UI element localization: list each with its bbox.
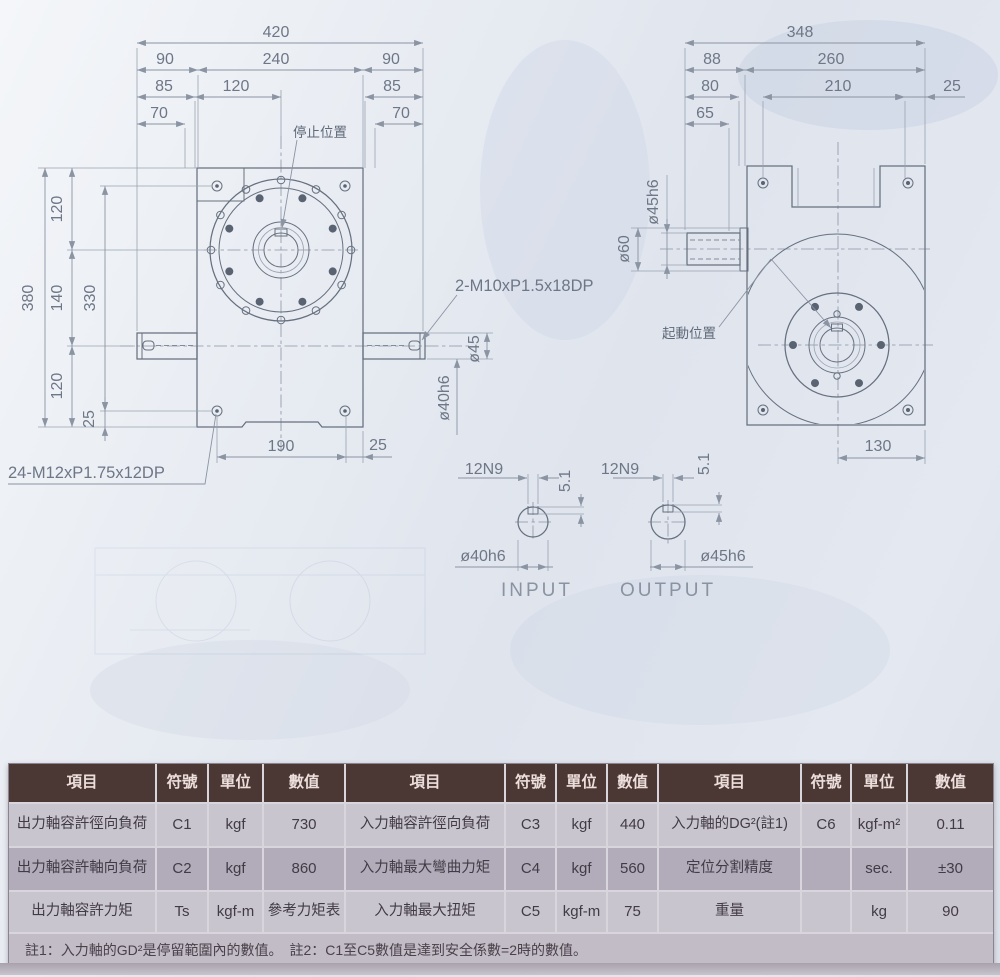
- tap-note-2-m10: 2-M10xP1.5x18DP: [455, 277, 594, 295]
- dim-label-dia45: ø45: [466, 335, 483, 363]
- table-cell: 860: [264, 848, 344, 890]
- table-cell: 入力軸最大扭矩: [346, 892, 504, 932]
- output-dia-label: ø45h6: [700, 548, 745, 565]
- front-face-line: [197, 168, 244, 201]
- dim-label-70-left: 70: [150, 105, 168, 122]
- dim-label-25-right: 25: [943, 78, 961, 95]
- side-input-shaft: [687, 228, 748, 271]
- input-caption: INPUT: [501, 580, 573, 601]
- dim-label-90-right: 90: [382, 51, 400, 68]
- table-cell: sec.: [852, 848, 906, 890]
- dim-label-dia45h6-side: ø45h6: [645, 179, 662, 224]
- side-body: [747, 166, 925, 425]
- dim-label-70-right: 70: [392, 105, 410, 122]
- ghost-drawing: [95, 548, 425, 654]
- table-cell: 730: [264, 804, 344, 846]
- dim-label-240: 240: [263, 51, 290, 68]
- table-cell: kg: [852, 892, 906, 932]
- dim-label-190: 190: [268, 438, 295, 455]
- table-cell: kgf-m: [209, 892, 262, 932]
- table-cell: C1: [157, 804, 207, 846]
- col-header-unit-3: 單位: [852, 764, 906, 802]
- dim-label-330: 330: [82, 285, 99, 312]
- table-cell: 入力軸容許徑向負荷: [346, 804, 504, 846]
- spec-table: 項目 符號 單位 數值 項目 符號 單位 數值 項目 符號 單位 數值 出力軸容…: [8, 763, 994, 966]
- scan-edge-strip: [0, 963, 1000, 975]
- table-cell: [802, 892, 850, 932]
- dim-label-348: 348: [787, 24, 814, 41]
- table-cell: C2: [157, 848, 207, 890]
- dim-label-120-top: 120: [223, 78, 250, 95]
- table-cell: 75: [608, 892, 657, 932]
- table-cell: kgf: [209, 804, 262, 846]
- dim-label-90-left: 90: [156, 51, 174, 68]
- dim-label-260: 260: [818, 51, 845, 68]
- side-small-hole-bottom: [834, 373, 840, 379]
- table-cell: 參考力矩表: [264, 892, 344, 932]
- col-header-symbol-1: 符號: [157, 764, 207, 802]
- col-header-value-3: 數值: [908, 764, 993, 802]
- table-cell: 入力軸的DG²(註1): [659, 804, 800, 846]
- stop-position-label: 停止位置: [293, 124, 347, 140]
- dim-label-25-bottom: 25: [369, 437, 387, 454]
- scan-artifacts: [90, 20, 998, 740]
- dim-label-85-right: 85: [383, 78, 401, 95]
- dim-label-dia40h6: ø40h6: [436, 375, 453, 420]
- table-cell: Ts: [157, 892, 207, 932]
- technical-drawing: 420 90 240 90 85 120 85 70 70 停止位置 380 1…: [0, 0, 1000, 763]
- col-header-unit-1: 單位: [209, 764, 262, 802]
- table-cell: 出力軸容許力矩: [9, 892, 155, 932]
- col-header-item-1: 項目: [9, 764, 155, 802]
- dim-label-85-left: 85: [155, 78, 173, 95]
- front-dimension-lines: [8, 43, 487, 484]
- side-corner-holes: [758, 178, 913, 415]
- input-shaft-section: 12N9 5.1 ø40h6 INPUT: [455, 461, 584, 601]
- table-cell: ±30: [908, 848, 993, 890]
- output-key-depth-label: 5.1: [696, 453, 713, 475]
- table-cell: kgf: [557, 848, 606, 890]
- table-cell: C5: [506, 892, 555, 932]
- col-header-item-2: 項目: [346, 764, 504, 802]
- dim-label-88: 88: [703, 51, 721, 68]
- table-cell: 定位分割精度: [659, 848, 800, 890]
- dim-label-210: 210: [825, 78, 852, 95]
- col-header-symbol-3: 符號: [802, 764, 850, 802]
- table-cell: kgf-m²: [852, 804, 906, 846]
- dim-label-dia60: ø60: [616, 235, 633, 263]
- col-header-unit-2: 單位: [557, 764, 606, 802]
- dim-label-120-lower: 120: [49, 373, 66, 400]
- input-key-label: 12N9: [465, 461, 503, 478]
- front-extension-lines: [38, 48, 493, 463]
- table-cell: 0.11: [908, 804, 993, 846]
- output-caption: OUTPUT: [620, 580, 716, 601]
- dim-label-420: 420: [263, 24, 290, 41]
- table-cell: 出力軸容許軸向負荷: [9, 848, 155, 890]
- table-cell: 90: [908, 892, 993, 932]
- table-cell: [802, 848, 850, 890]
- table-cell: kgf-m: [557, 892, 606, 932]
- table-cell: 入力軸最大彎曲力矩: [346, 848, 504, 890]
- table-cell: 出力軸容許徑向負荷: [9, 804, 155, 846]
- col-header-value-1: 數值: [264, 764, 344, 802]
- table-cell: kgf: [209, 848, 262, 890]
- start-position-label: 起動位置: [662, 326, 716, 341]
- output-key-label: 12N9: [601, 461, 639, 478]
- table-cell: C4: [506, 848, 555, 890]
- input-key-depth-label: 5.1: [557, 470, 574, 492]
- datasheet-page: 420 90 240 90 85 120 85 70 70 停止位置 380 1…: [0, 0, 1000, 977]
- table-cell: 重量: [659, 892, 800, 932]
- table-cell: kgf: [557, 804, 606, 846]
- table-cell: C3: [506, 804, 555, 846]
- side-small-hole-top: [834, 311, 840, 317]
- dim-label-130: 130: [865, 438, 892, 455]
- table-cell: 560: [608, 848, 657, 890]
- dim-label-25-side: 25: [81, 410, 98, 428]
- input-dia-label: ø40h6: [460, 548, 505, 565]
- dim-label-80: 80: [701, 78, 719, 95]
- dim-label-140: 140: [49, 285, 66, 312]
- dim-label-120-upper: 120: [49, 196, 66, 223]
- table-cell: 440: [608, 804, 657, 846]
- table-cell: C6: [802, 804, 850, 846]
- col-header-value-2: 數值: [608, 764, 657, 802]
- table-footnote: 註1：入力軸的GD²是停留範圍內的數值。 註2：C1至C5數值是達到安全係數=2…: [9, 934, 993, 965]
- col-header-item-3: 項目: [659, 764, 800, 802]
- dim-label-65: 65: [696, 105, 714, 122]
- col-header-symbol-2: 符號: [506, 764, 555, 802]
- tap-note-24-m12: 24-M12xP1.75x12DP: [8, 464, 165, 482]
- dim-label-380: 380: [20, 285, 37, 312]
